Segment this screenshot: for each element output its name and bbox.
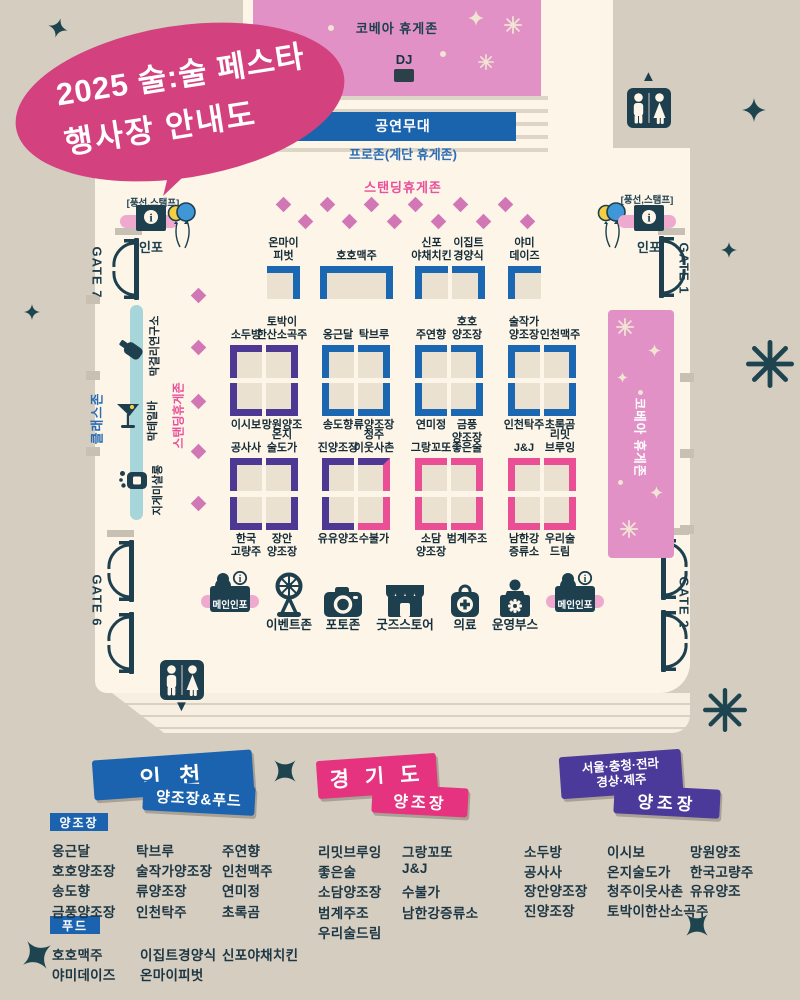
sparkle-icon	[616, 318, 634, 341]
wall-segment	[86, 371, 100, 380]
booth	[451, 497, 483, 530]
booth	[452, 266, 485, 299]
booth	[267, 266, 300, 299]
legend-item: 술작가양조장	[136, 860, 212, 880]
star-icon	[24, 304, 40, 325]
star-icon	[20, 938, 54, 977]
star-icon	[742, 98, 766, 127]
operations-icon	[494, 572, 536, 618]
legend-item: 주연향	[222, 840, 260, 860]
booth	[415, 497, 447, 530]
legend-regions-banner-sub: 양조장	[613, 784, 720, 819]
legend-item: 온지술도가	[607, 861, 671, 881]
booth	[358, 383, 390, 416]
svg-text:i: i	[239, 574, 242, 585]
booth-label: 우리술 드림	[515, 533, 605, 558]
booth	[230, 345, 262, 378]
legend-item: 호호양조장	[52, 860, 116, 880]
legend-item: 유유양조	[690, 880, 741, 900]
booth	[266, 458, 298, 491]
booth	[415, 458, 447, 491]
booth	[358, 345, 390, 378]
up-arrow-icon: ▲	[641, 68, 656, 85]
legend-item: 금풍양조장	[52, 901, 116, 921]
down-arrow-icon: ▼	[174, 698, 189, 715]
booth	[230, 458, 262, 491]
legend-item: 야미데이즈	[52, 964, 116, 984]
wall-segment	[680, 373, 694, 382]
zone-kovea-rest-right-label: 코베아 휴게존	[632, 388, 651, 488]
legend-item: 범계주조	[318, 902, 369, 922]
legend-incheon-banner-sub: 양조장&푸드	[142, 781, 255, 816]
legend-item: 남한강증류소	[402, 902, 478, 922]
balloons-icon	[166, 200, 198, 255]
legend-item: 공사사	[524, 861, 562, 881]
booth	[322, 383, 354, 416]
standing-zone-left-label: 스탠딩휴게존	[170, 371, 187, 461]
sparkle-icon	[468, 10, 484, 31]
legend-item: 망원양조	[690, 841, 741, 861]
camera-icon	[322, 572, 364, 618]
legend-gyeonggi-banner-sub: 양조장	[371, 784, 468, 818]
star-icon	[682, 910, 712, 945]
restroom-icon	[627, 88, 671, 133]
booth	[544, 383, 576, 416]
dj-label: DJ	[384, 52, 424, 67]
booth-label: 인천맥주	[515, 329, 605, 342]
booth	[508, 458, 540, 491]
legend-item: 이시보	[607, 841, 645, 861]
store-icon	[384, 572, 426, 618]
sparkle-icon	[328, 18, 334, 36]
facility-label: 운영부스	[475, 614, 555, 633]
legend-item: 청주이웃사촌	[607, 880, 683, 900]
star-icon	[48, 18, 68, 43]
sparkle-icon	[440, 44, 446, 62]
booth	[451, 345, 483, 378]
legend-item: 인천맥주	[222, 860, 273, 880]
class-zone-label: 클래스존	[87, 384, 106, 454]
legend-item: 신포야채치킨	[222, 944, 298, 964]
legend-item: J&J	[402, 861, 428, 876]
booth	[322, 497, 354, 530]
legend-incheon-brewery-tag: 양조장	[50, 813, 108, 831]
cocktail-icon	[114, 402, 142, 437]
facility-label: 메인인포	[208, 597, 252, 611]
booth	[544, 497, 576, 530]
legend-item: 이집트경양식	[140, 944, 216, 964]
legend-item: 한국고량주	[690, 861, 754, 881]
wall-segment	[680, 449, 694, 458]
gate-6-label: GATE 6	[90, 566, 105, 636]
legend-item: 그랑꼬또	[402, 841, 453, 861]
booth	[508, 383, 540, 416]
booth	[415, 266, 448, 299]
booth	[451, 458, 483, 491]
legend-item: 초록곰	[222, 901, 260, 921]
sparkle-icon	[650, 486, 663, 504]
booth	[415, 383, 447, 416]
venue-map-canvas: 코베아 휴게존 DJ 공연무대 프로존(계단 휴게존) 스탠딩휴게존 스탠딩휴게…	[0, 0, 800, 1000]
sparkle-icon	[617, 370, 628, 388]
legend-item: 좋은술	[318, 861, 356, 881]
booth-label: 리밋 브루잉	[515, 429, 605, 454]
gate-2-label: GATE 2	[677, 568, 692, 638]
legend-item: 탁브루	[136, 840, 174, 860]
prize-wheel-icon	[268, 572, 310, 618]
medical-icon	[444, 572, 486, 618]
gate-1-label: GATE 1	[677, 234, 692, 304]
booth	[266, 383, 298, 416]
sparkle-icon	[504, 16, 522, 39]
legend-item: 옹근달	[52, 840, 90, 860]
booth	[266, 497, 298, 530]
gate-6-door	[105, 612, 135, 679]
svg-text:i: i	[584, 574, 587, 585]
class-item-label: 지게미살롱	[149, 445, 165, 535]
sparkle-icon	[648, 344, 661, 362]
booth	[451, 383, 483, 416]
booth	[230, 383, 262, 416]
booth	[508, 266, 541, 299]
booth-label: 야미 데이즈	[480, 237, 570, 262]
booth	[358, 497, 390, 530]
booth	[358, 458, 390, 491]
booth	[508, 497, 540, 530]
gate-7-label: GATE 7	[90, 238, 105, 308]
legend-item: 소두방	[524, 841, 562, 861]
legend-item: 송도향	[52, 880, 90, 900]
sparkle-icon	[478, 54, 494, 75]
legend-item: 리밋브루잉	[318, 841, 382, 861]
legend-item: 장안양조장	[524, 880, 588, 900]
wall-segment	[107, 530, 134, 537]
legend-item: 류양조장	[136, 880, 187, 900]
soap-icon	[118, 468, 150, 499]
sparkle-icon	[618, 472, 623, 490]
gate-6-door	[105, 540, 135, 607]
dj-booth	[394, 69, 414, 82]
info-booth-right-label: 인포	[627, 237, 671, 256]
info-desk-icon: i	[131, 203, 171, 238]
legend-item: 진양조장	[524, 900, 575, 920]
booth	[508, 345, 540, 378]
legend-item: 연미정	[222, 880, 260, 900]
sparkle-icon	[620, 520, 638, 543]
standing-zone-label: 스탠딩휴게존	[303, 177, 503, 196]
booth	[230, 497, 262, 530]
star-icon	[746, 340, 794, 393]
booth	[266, 345, 298, 378]
booth	[544, 458, 576, 491]
legend-item: 호호맥주	[52, 944, 103, 964]
info-desk-icon: i	[629, 203, 669, 238]
legend-item: 소담양조장	[318, 881, 382, 901]
star-icon	[270, 756, 300, 791]
legend-item: 온마이피벗	[140, 964, 204, 984]
pro-zone-label: 프로존(계단 휴게존)	[303, 144, 503, 163]
booth	[544, 345, 576, 378]
star-icon	[721, 242, 737, 263]
legend-item: 우리술드림	[318, 922, 382, 942]
bottle-icon	[116, 334, 148, 371]
booth	[415, 345, 447, 378]
facility-label: 메인인포	[553, 597, 597, 611]
legend-item: 수불가	[402, 881, 440, 901]
booth	[320, 266, 393, 299]
sparkle-icon	[638, 382, 643, 400]
legend-item: 인천탁주	[136, 901, 187, 921]
booth	[322, 458, 354, 491]
star-icon	[703, 688, 747, 737]
booth	[322, 345, 354, 378]
